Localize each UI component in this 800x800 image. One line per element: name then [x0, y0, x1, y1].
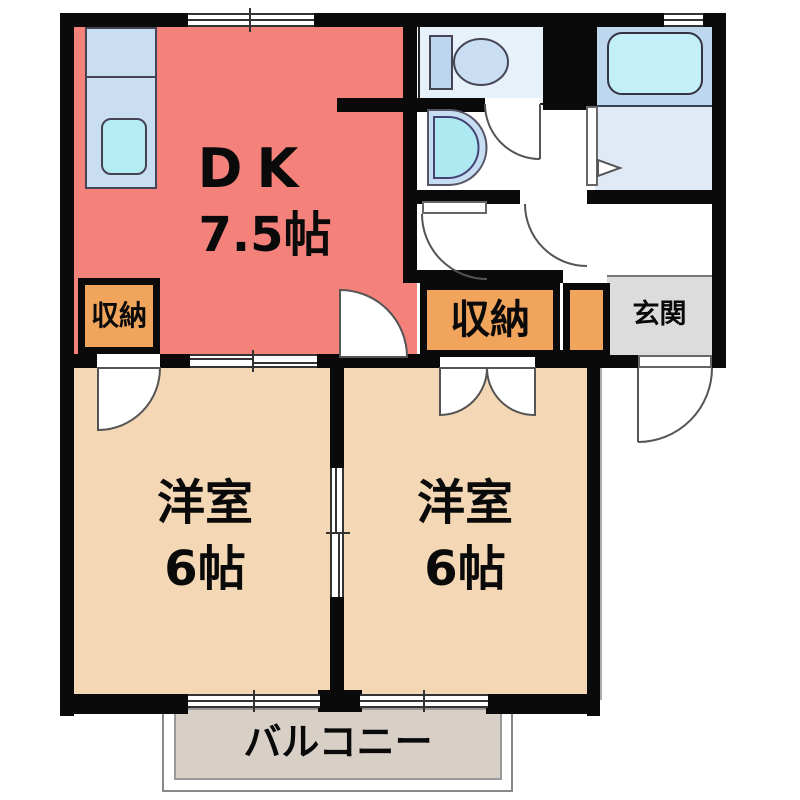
- entrance-door-leaf: [638, 355, 712, 368]
- floor-plan: DK 7.5帖 収納 収納 玄関 洋室 6帖 洋室 6帖 バルコニー: [0, 0, 800, 800]
- bathroom-area: [595, 22, 714, 105]
- wall-room1-top-a: [60, 354, 97, 368]
- storage-left-label: 収納: [78, 278, 160, 354]
- wall-toilet-bath: [543, 20, 597, 110]
- dk-size-label: 7.5帖: [150, 208, 380, 263]
- wall-room1-top-b: [160, 354, 190, 368]
- western-room-right-size: 6帖: [355, 536, 575, 602]
- western-room-left-label: 洋室 6帖: [95, 470, 315, 602]
- entrance-label: 玄関: [607, 275, 712, 355]
- washbasin-icon: [428, 110, 487, 185]
- shoe-closet-box: [563, 283, 610, 357]
- western-room-left-name: 洋室: [95, 470, 315, 536]
- kitchen-sink-icon: [101, 118, 147, 175]
- kitchen-counter-divider: [85, 76, 157, 78]
- shoe-closet-opening: [563, 270, 607, 283]
- entrance-door-arc: [638, 368, 712, 442]
- washroom-door-leaf: [422, 201, 487, 214]
- wall-right-upper: [712, 13, 726, 368]
- wall-bottom-right: [486, 694, 600, 714]
- dk-label: DK: [150, 138, 360, 200]
- hall-door-opening: [520, 190, 587, 204]
- toilet-door-arc: [485, 104, 540, 159]
- bathroom-floor-area: [595, 105, 714, 190]
- balcony-label: バルコニー: [174, 706, 502, 780]
- sliding-door-dk-room1: [190, 354, 317, 368]
- dk-door-opening: [403, 283, 417, 355]
- wall-top: [60, 13, 726, 27]
- wall-hallway-bottom: [410, 270, 563, 283]
- storage-left-opening: [97, 354, 160, 368]
- wall-dk-stub: [337, 98, 417, 112]
- window-dk-top: [188, 13, 314, 27]
- wall-right-lower: [587, 355, 600, 716]
- exterior-outline: [600, 368, 602, 700]
- hall-door-arc: [525, 204, 587, 266]
- bath-door-leaf: [586, 106, 598, 186]
- western-room-right-name: 洋室: [355, 470, 575, 536]
- wall-room1-top-c: [317, 354, 420, 368]
- toilet-room-area: [418, 22, 545, 105]
- storage-center-label: 収納: [420, 283, 560, 357]
- wall-bottom-left: [60, 694, 188, 714]
- western-room-right-label: 洋室 6帖: [355, 470, 575, 602]
- sliding-door-room1-room2: [330, 468, 344, 597]
- western-room-left-size: 6帖: [95, 536, 315, 602]
- wall-toilet-bottom: [410, 98, 485, 112]
- toilet-door-opening: [485, 98, 540, 112]
- wall-dk-hallway: [403, 20, 417, 283]
- window-bath-top: [664, 13, 703, 27]
- wall-bath-bottom: [587, 190, 714, 204]
